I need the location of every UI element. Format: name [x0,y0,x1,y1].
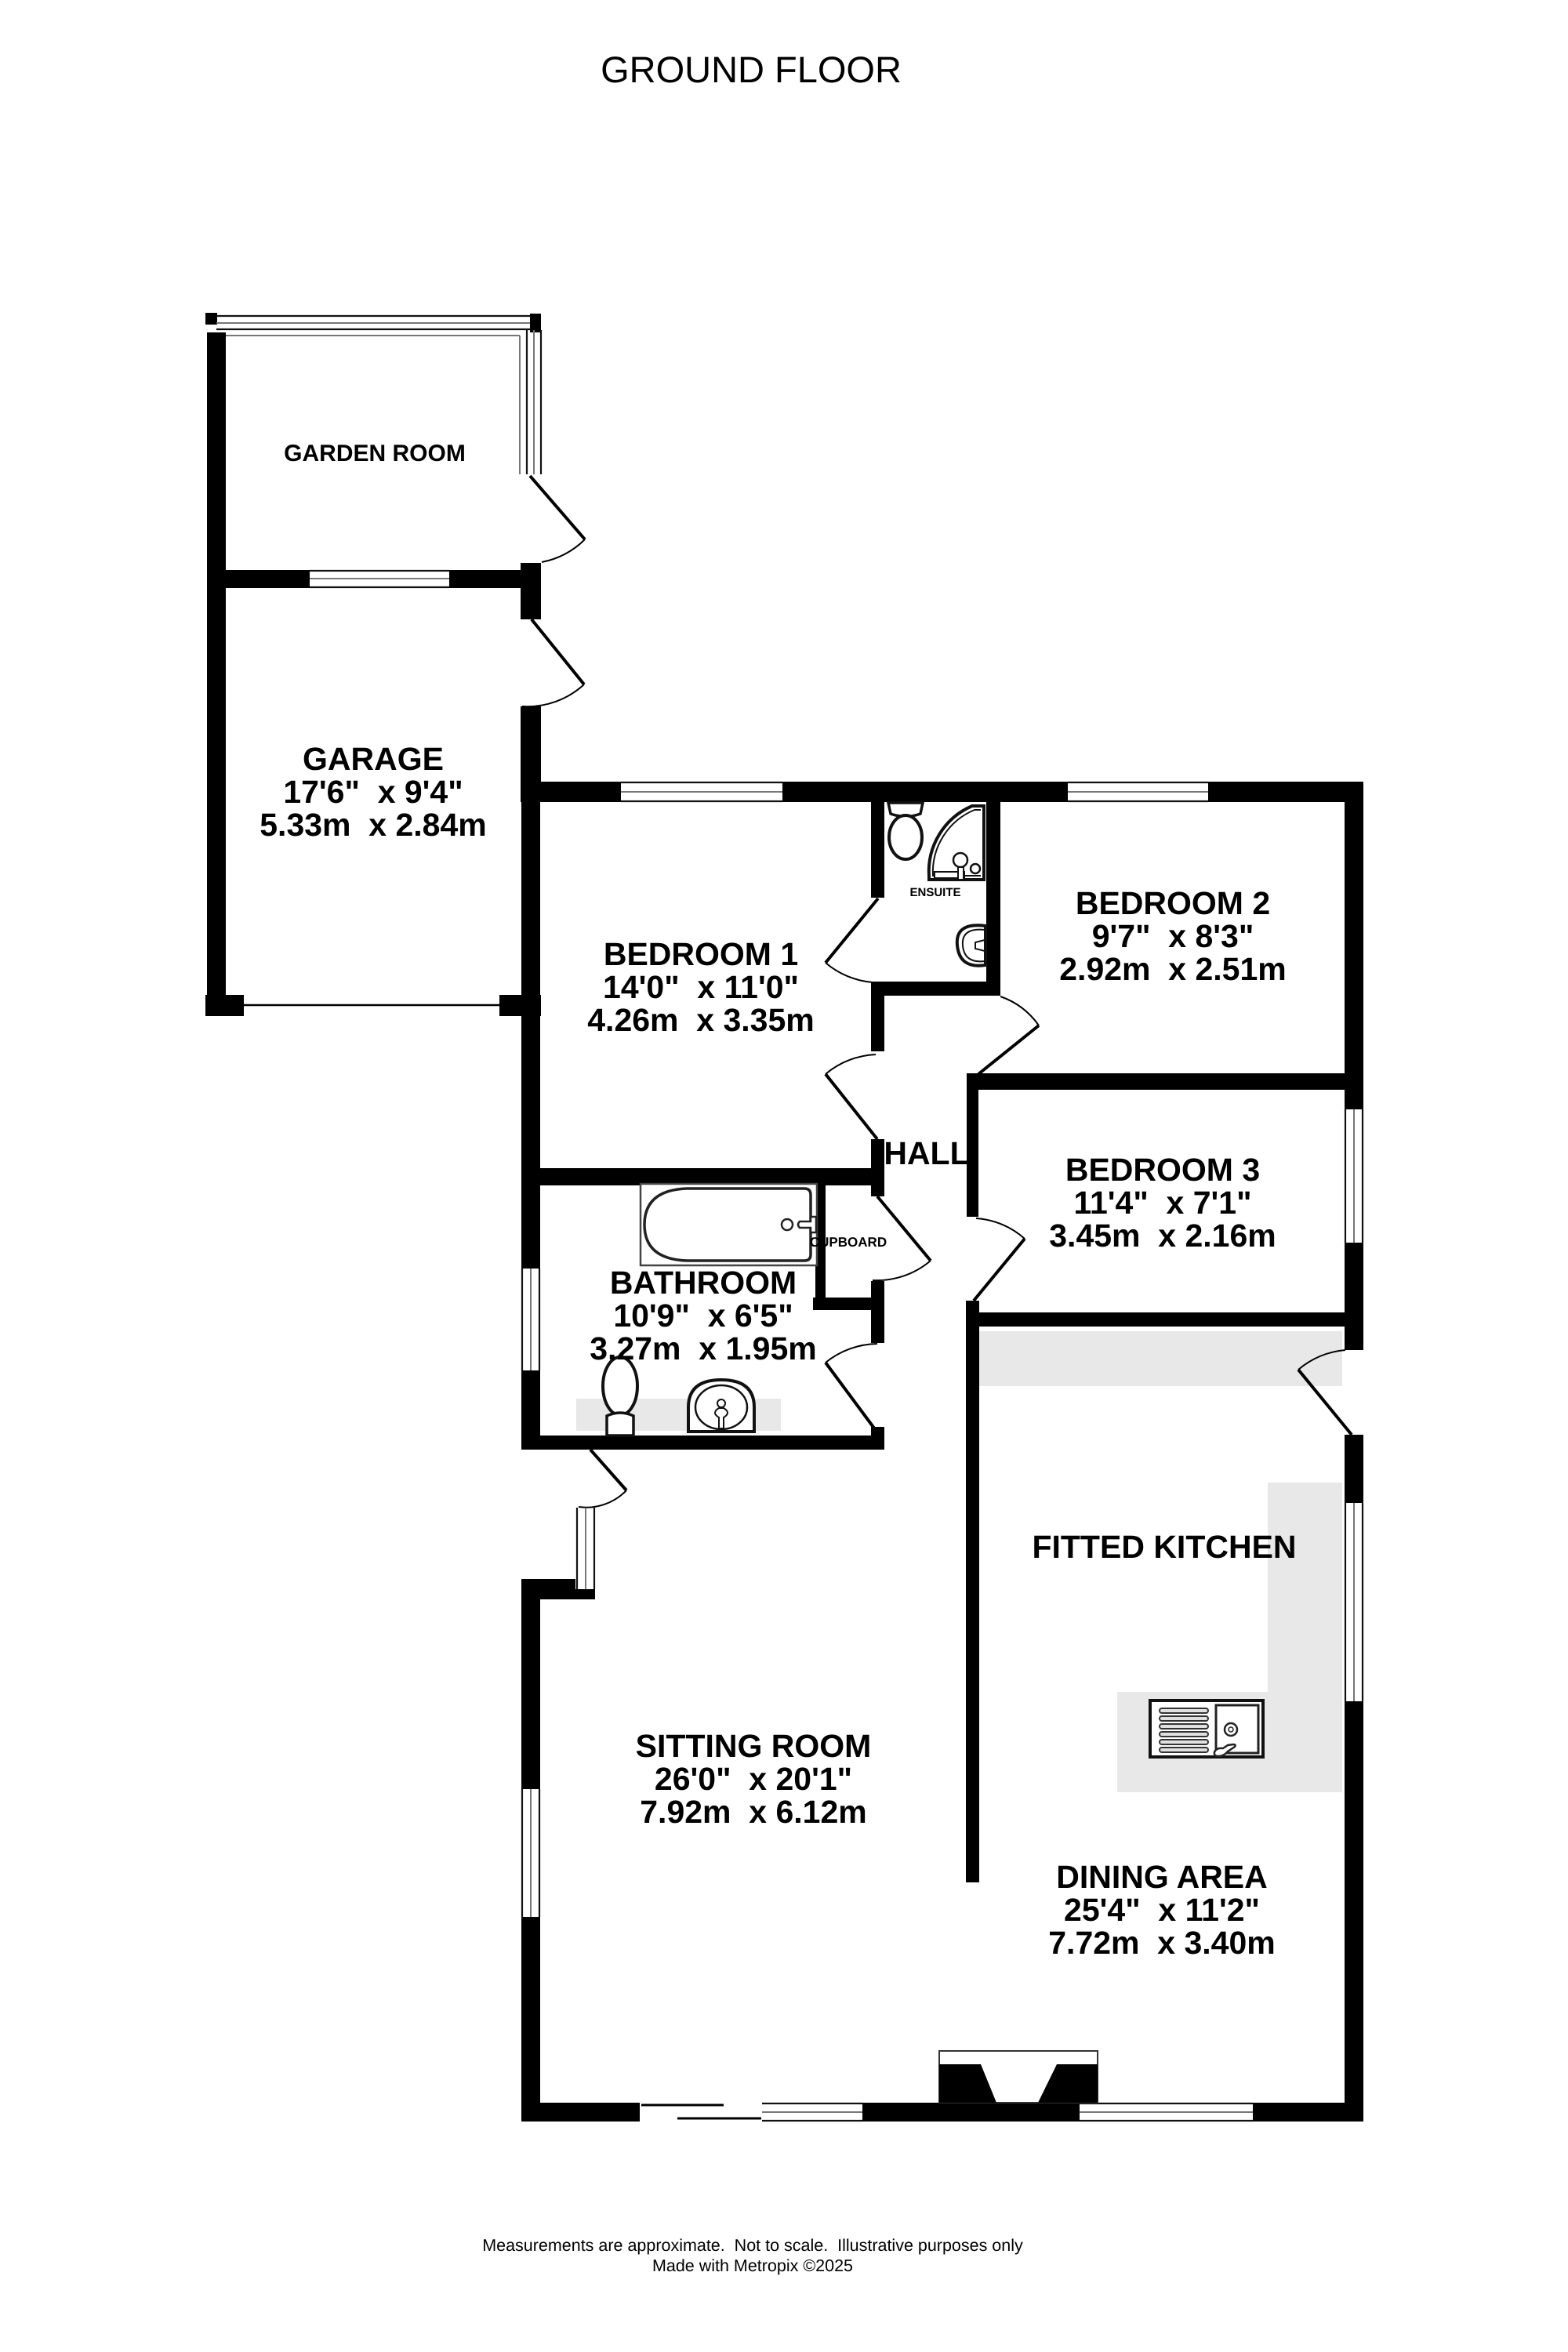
svg-text:17'6" x 9'4": 17'6" x 9'4" [283,774,463,810]
svg-text:7.92m x 6.12m: 7.92m x 6.12m [640,1794,866,1830]
svg-text:GARDEN ROOM: GARDEN ROOM [284,441,466,466]
svg-text:GROUND FLOOR: GROUND FLOOR [601,49,902,90]
svg-text:9'7" x 8'3": 9'7" x 8'3" [1092,918,1254,954]
svg-text:26'0" x 20'1": 26'0" x 20'1" [655,1761,852,1797]
svg-text:10'9" x 6'5": 10'9" x 6'5" [613,1298,793,1334]
svg-text:25'4" x 11'2": 25'4" x 11'2" [1064,1892,1260,1928]
svg-text:14'0" x 11'0": 14'0" x 11'0" [603,969,799,1005]
svg-text:CUPBOARD: CUPBOARD [810,1235,887,1250]
svg-text:Made with Metropix ©2025: Made with Metropix ©2025 [652,2256,853,2275]
svg-text:FITTED KITCHEN: FITTED KITCHEN [1032,1529,1296,1565]
svg-text:5.33m x 2.84m: 5.33m x 2.84m [260,807,486,843]
svg-text:BEDROOM 3: BEDROOM 3 [1065,1152,1260,1188]
svg-text:Measurements are approximate.: Measurements are approximate. Not to sca… [482,2236,1023,2255]
svg-text:2.92m x 2.51m: 2.92m x 2.51m [1059,951,1286,987]
svg-text:BEDROOM 2: BEDROOM 2 [1076,885,1270,921]
svg-text:3.27m x 1.95m: 3.27m x 1.95m [590,1330,816,1367]
svg-text:ENSUITE: ENSUITE [909,886,960,899]
svg-text:GARAGE: GARAGE [303,741,444,777]
svg-text:BEDROOM 1: BEDROOM 1 [604,936,798,972]
svg-text:4.26m x 3.35m: 4.26m x 3.35m [587,1002,814,1038]
svg-text:7.72m x 3.40m: 7.72m x 3.40m [1048,1925,1275,1961]
svg-text:HALL: HALL [884,1135,969,1171]
svg-text:3.45m x 2.16m: 3.45m x 2.16m [1049,1218,1276,1254]
svg-text:BATHROOM: BATHROOM [610,1265,797,1301]
svg-text:DINING AREA: DINING AREA [1056,1859,1268,1895]
svg-text:SITTING ROOM: SITTING ROOM [636,1728,872,1764]
svg-text:11'4" x 7'1": 11'4" x 7'1" [1073,1185,1251,1221]
